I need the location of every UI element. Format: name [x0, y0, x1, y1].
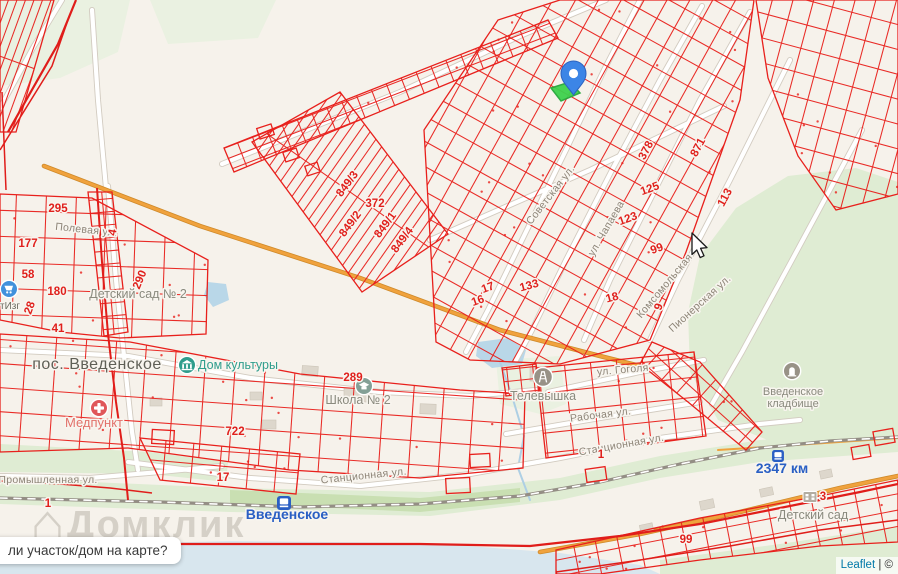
poi-icon-cemetery [783, 362, 800, 379]
parcel-marker-dot [589, 556, 591, 558]
map-label: 722 [225, 426, 244, 438]
parcel-marker-dot [173, 316, 175, 318]
parcel-marker-dot [456, 66, 458, 68]
parcel-marker-dot [801, 152, 803, 154]
poi-icon-shop [0, 280, 17, 297]
base [182, 369, 193, 370]
map-label: Дом культуры [198, 358, 278, 372]
map-label: кладбище [767, 398, 818, 410]
parcel-marker-dot [277, 412, 279, 414]
poi-icon-tower [534, 368, 553, 387]
map-label: 99 [680, 534, 693, 546]
parcel-marker-dot [829, 171, 831, 173]
parcel-marker-dot [80, 271, 82, 273]
parcel-marker-dot [152, 396, 154, 398]
parcel-marker-dot [875, 145, 877, 147]
parcel-marker-dot [123, 243, 125, 245]
map-attribution: Leaflet | © [836, 557, 898, 574]
map-label: 1 [598, 449, 605, 461]
parcel-marker-dot [625, 568, 627, 570]
parcel-marker-dot [656, 64, 658, 66]
map-label: 295 [48, 203, 68, 215]
cap-base [361, 387, 366, 390]
attribution-rest: | © [875, 559, 893, 571]
parcel-marker-dot [633, 545, 635, 547]
poi-icon-culture [178, 356, 195, 373]
map-label: 180 [47, 286, 66, 298]
map-label: 17 [217, 472, 230, 484]
map-label: Телевышка [510, 389, 576, 403]
parcel-marker-dot [699, 17, 701, 19]
parcel-marker-dot [669, 111, 671, 113]
green-area [150, 0, 276, 44]
parcel-marker-dot [9, 345, 11, 347]
parcel-marker-dot [729, 31, 731, 33]
building-window [806, 498, 809, 500]
parcel-marker-dot [493, 50, 495, 52]
map-search-box[interactable]: ли участок/дом на карте? [0, 537, 181, 564]
cart-wheel [10, 291, 12, 293]
parcel-marker-dot [92, 319, 94, 321]
parcel-marker-dot [210, 471, 212, 473]
column [186, 364, 188, 368]
parcel-marker-dot [504, 234, 506, 236]
parcel-marker-dot [647, 251, 649, 253]
parcel-marker-dot [78, 385, 80, 387]
parcel-marker-dot [501, 459, 503, 461]
parcel-marker-dot [734, 49, 736, 51]
parcel-marker-dot [584, 293, 586, 295]
leaflet-link[interactable]: Leaflet [841, 559, 876, 571]
parcel-marker-dot [271, 397, 273, 399]
parcel-marker-dot [169, 284, 171, 286]
map-label: 41 [52, 323, 65, 335]
parcel-marker-dot [447, 239, 449, 241]
parcel-marker-dot [542, 174, 544, 176]
search-question-text: ли участок/дом на карте? [8, 543, 168, 558]
map-label: 372 [365, 198, 384, 210]
map-label: тИзг [0, 301, 20, 312]
parcel-marker-dot [204, 264, 206, 266]
parcel-marker-dot [625, 326, 627, 328]
tower-icon [534, 368, 553, 387]
map-label: Медпункт [65, 415, 123, 430]
map-label: Детский сад № 2 [89, 287, 187, 301]
parcel-marker-dot [511, 21, 513, 23]
train-window [280, 498, 288, 504]
building-window [812, 498, 815, 500]
parcel-marker-dot [590, 73, 592, 75]
parcel-marker-dot [339, 437, 341, 439]
column [182, 364, 184, 368]
parcel-marker-dot [497, 39, 499, 41]
parcel-marker-dot [652, 367, 654, 369]
parcel-marker-dot [513, 226, 515, 228]
parcel-marker-dot [797, 93, 799, 95]
parcel-marker-dot [605, 567, 607, 569]
parcel-marker-dot [621, 162, 623, 164]
building [262, 420, 276, 429]
parcel-marker-dot [578, 561, 580, 563]
parcel-marker-dot [723, 401, 725, 403]
parcel-marker-dot [367, 102, 369, 104]
parcel-marker-dot [415, 446, 417, 448]
parcel-marker-dot [448, 261, 450, 263]
parcel-marker-dot [816, 120, 818, 122]
parcel-marker-dot [245, 399, 247, 401]
parcel-marker-dot [618, 10, 620, 12]
cart-wheel [6, 291, 8, 293]
parcel-marker-dot [618, 380, 620, 382]
parcel-marker-dot [178, 314, 180, 316]
parcel-marker-dot [702, 526, 704, 528]
map-viewport[interactable]: Советская ул.ул. ЧапаеваКомсомольскаяПио… [0, 0, 898, 574]
parcel-marker-dot [274, 151, 276, 153]
parcel-marker-dot [283, 467, 285, 469]
parcel-marker-dot [72, 340, 74, 342]
parcel-marker-dot [598, 9, 600, 11]
building-box [803, 492, 817, 503]
building-window [812, 494, 815, 496]
map-label: Школа № 2 [325, 393, 390, 407]
parcel-marker-dot [835, 191, 837, 193]
parcel-marker-dot [13, 217, 15, 219]
parcel-marker-dot [222, 381, 224, 383]
parcel-marker-dot [491, 423, 493, 425]
parcel-marker-dot [785, 542, 787, 544]
map-label: Введенское [246, 506, 329, 522]
parcel-marker-dot [488, 181, 490, 183]
map-label: пос. Введенское [32, 356, 162, 373]
parcel-marker-dot [528, 163, 530, 165]
parcel-marker-dot [731, 100, 733, 102]
map-label: 289 [343, 372, 362, 384]
parcel-marker-dot [492, 109, 494, 111]
map-canvas[interactable]: Советская ул.ул. ЧапаеваКомсомольскаяПио… [0, 0, 898, 574]
map-label: 177 [18, 238, 37, 250]
map-label: Детский сад [778, 508, 849, 522]
parcel-marker-dot [480, 190, 482, 192]
pin-hole[interactable] [569, 69, 578, 78]
poi-icon-building [803, 492, 817, 503]
headstone-base [788, 375, 796, 376]
map-label: Введенское [763, 386, 823, 398]
map-label: Промышленная ул. [0, 474, 98, 486]
map-label: 58 [22, 269, 35, 281]
parcel-marker-dot [505, 320, 507, 322]
parcel-marker-dot [803, 124, 805, 126]
parcel-marker-dot [254, 466, 256, 468]
building [250, 392, 262, 400]
map-label: 2347 км [756, 460, 808, 476]
map-label: 1 [45, 498, 52, 510]
column [190, 364, 192, 368]
parcel-marker-dot [880, 504, 882, 506]
headstone [789, 367, 795, 375]
cross-h [94, 406, 104, 409]
parcel-marker-dot [730, 400, 732, 402]
parcel-marker-dot [517, 105, 519, 107]
parcel-marker-dot [297, 436, 299, 438]
parcel-marker-dot [840, 529, 842, 531]
parcel-marker-dot [660, 427, 662, 429]
parcel-marker-dot [247, 460, 249, 462]
building [420, 404, 436, 415]
building-window [806, 494, 809, 496]
parcel-marker-dot [661, 525, 663, 527]
map-label: 3 [820, 491, 826, 503]
parcel-marker-dot [649, 221, 651, 223]
parcel-marker-dot [708, 171, 710, 173]
train-window [774, 452, 781, 457]
